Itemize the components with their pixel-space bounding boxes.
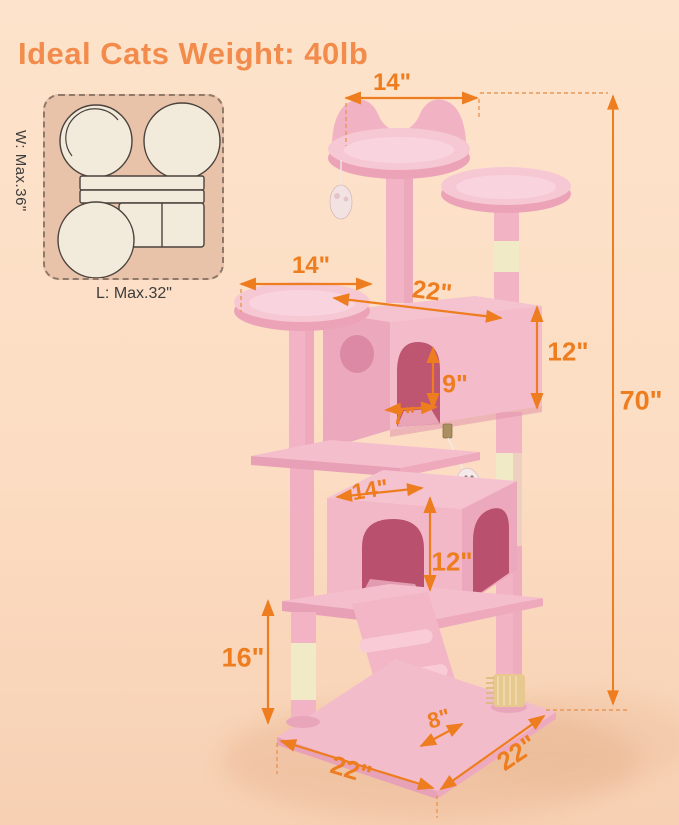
cat-tree-illustration (0, 0, 679, 825)
dim-label-door-height: 9" (442, 371, 468, 400)
right-platform (441, 167, 571, 213)
dim-label-condo-height: 12" (547, 337, 588, 368)
condo-side-hole (340, 335, 374, 373)
dim-label-top-perch-width: 14" (373, 69, 411, 97)
left-platform (234, 282, 370, 331)
dim-label-lower-condo-height: 12" (431, 547, 472, 578)
dim-label-total-height: 70" (620, 386, 663, 417)
middle-platform (251, 440, 480, 477)
dim-label-bottom-height: 16" (222, 643, 265, 674)
lower-left-post (291, 612, 316, 724)
dim-label-left-platform-width: 14" (292, 252, 330, 280)
dim-label-door-width: 7" (391, 402, 417, 431)
dim-label-condo-width: 22" (411, 275, 454, 309)
product-dimension-diagram: Ideal Cats Weight: 40lb W: Max.36" L: Ma… (0, 0, 679, 825)
top-perch (328, 99, 470, 179)
dim-label-lower-condo-width: 14" (350, 474, 390, 506)
